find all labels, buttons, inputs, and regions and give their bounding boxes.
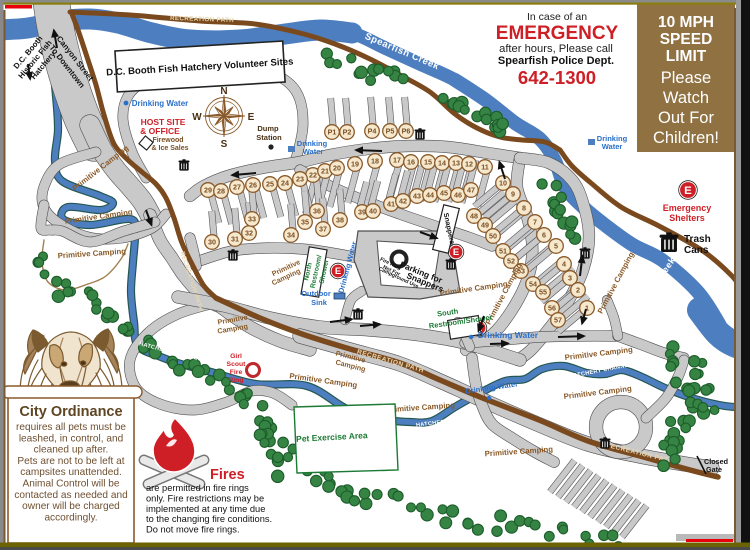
svg-text:only. Fire restrictions may be: only. Fire restrictions may be: [146, 493, 264, 503]
svg-text:P4: P4: [368, 127, 377, 136]
svg-text:P5: P5: [386, 127, 395, 136]
svg-text:accordingly.: accordingly.: [44, 512, 97, 523]
svg-text:Ring: Ring: [228, 377, 243, 384]
svg-text:27: 27: [233, 183, 241, 192]
svg-text:10: 10: [499, 179, 507, 188]
svg-text:24: 24: [281, 179, 289, 188]
svg-text:35: 35: [301, 218, 309, 227]
svg-text:21: 21: [321, 167, 329, 176]
svg-text:39: 39: [358, 208, 366, 217]
svg-text:32: 32: [245, 229, 253, 238]
svg-text:33: 33: [248, 215, 256, 224]
svg-text:56: 56: [548, 304, 556, 313]
svg-text:N: N: [220, 86, 227, 97]
svg-text:Animal Control will be: Animal Control will be: [22, 479, 119, 490]
svg-text:implemented at any time due: implemented at any time due: [146, 504, 265, 514]
svg-text:Station: Station: [256, 133, 282, 142]
svg-text:Children!: Children!: [653, 129, 719, 147]
svg-text:44: 44: [426, 191, 434, 200]
svg-text:& Ice Sales: & Ice Sales: [152, 145, 189, 152]
svg-text:49: 49: [481, 221, 489, 230]
svg-text:3: 3: [568, 274, 572, 283]
svg-text:Emergency: Emergency: [663, 203, 712, 213]
svg-text:campsites unattended.: campsites unattended.: [20, 467, 122, 478]
svg-text:22: 22: [309, 171, 317, 180]
svg-text:Fires: Fires: [210, 467, 245, 483]
svg-text:15: 15: [424, 158, 432, 167]
svg-text:owner will be charged: owner will be charged: [22, 501, 120, 512]
svg-text:4: 4: [562, 260, 566, 269]
svg-text:City Ordinance: City Ordinance: [19, 404, 122, 420]
svg-text:Trash: Trash: [684, 234, 711, 245]
svg-text:7: 7: [533, 218, 537, 227]
svg-text:38: 38: [336, 216, 344, 225]
svg-text:36: 36: [313, 207, 321, 216]
svg-text:642-1300: 642-1300: [518, 67, 596, 88]
svg-text:W: W: [192, 112, 202, 123]
svg-text:Drinking Water: Drinking Water: [132, 99, 189, 108]
svg-text:Cans: Cans: [684, 245, 709, 256]
svg-text:51: 51: [499, 247, 507, 256]
svg-text:Firewood: Firewood: [152, 137, 183, 144]
svg-text:41: 41: [387, 200, 395, 209]
svg-text:16: 16: [407, 158, 415, 167]
svg-text:EMERGENCY: EMERGENCY: [496, 23, 619, 44]
svg-text:Scout: Scout: [227, 361, 247, 368]
svg-text:6: 6: [542, 231, 546, 240]
svg-text:P2: P2: [343, 128, 352, 137]
svg-text:E: E: [684, 185, 692, 197]
svg-text:LIMIT: LIMIT: [666, 48, 707, 65]
svg-text:14: 14: [438, 159, 446, 168]
svg-text:10 MPH: 10 MPH: [658, 14, 714, 31]
svg-text:Shelters: Shelters: [669, 213, 705, 223]
svg-text:Drinking Water: Drinking Water: [478, 330, 539, 340]
svg-text:Fire: Fire: [230, 369, 243, 376]
svg-text:25: 25: [266, 180, 274, 189]
svg-text:cleaned up after.: cleaned up after.: [34, 445, 109, 456]
svg-text:Water: Water: [602, 142, 623, 151]
svg-text:Out For: Out For: [658, 109, 714, 127]
svg-text:Outdoor: Outdoor: [301, 289, 331, 298]
svg-text:P6: P6: [402, 127, 411, 136]
svg-text:requires all pets must be: requires all pets must be: [16, 422, 126, 433]
svg-text:12: 12: [465, 160, 473, 169]
svg-text:47: 47: [467, 186, 475, 195]
svg-text:54: 54: [529, 280, 537, 289]
svg-text:Girl: Girl: [230, 353, 242, 360]
svg-text:40: 40: [369, 207, 377, 216]
svg-text:9: 9: [511, 190, 515, 199]
svg-text:11: 11: [481, 163, 489, 172]
svg-text:S: S: [221, 139, 228, 150]
svg-text:42: 42: [399, 197, 407, 206]
svg-text:57: 57: [554, 316, 562, 325]
svg-text:Pets are not to be left at: Pets are not to be left at: [17, 456, 124, 467]
svg-text:37: 37: [319, 225, 327, 234]
svg-text:26: 26: [249, 181, 257, 190]
svg-text:Sink: Sink: [311, 298, 328, 307]
svg-text:Gate: Gate: [706, 465, 722, 474]
svg-text:Do not move fire rings.: Do not move fire rings.: [146, 525, 240, 535]
svg-text:leashed, in control, and: leashed, in control, and: [19, 433, 123, 444]
svg-text:E: E: [453, 247, 459, 258]
svg-text:23: 23: [296, 175, 304, 184]
svg-text:Please: Please: [661, 69, 711, 87]
svg-text:P1: P1: [328, 128, 337, 137]
svg-text:50: 50: [489, 232, 497, 241]
svg-text:45: 45: [440, 189, 448, 198]
svg-text:19: 19: [351, 160, 359, 169]
svg-text:34: 34: [287, 231, 295, 240]
svg-text:29: 29: [204, 186, 212, 195]
svg-text:Water: Water: [303, 147, 324, 156]
svg-text:13: 13: [452, 159, 460, 168]
svg-text:contacted as needed and: contacted as needed and: [14, 490, 127, 501]
svg-text:5: 5: [554, 242, 558, 251]
svg-text:E: E: [248, 112, 255, 123]
svg-text:Watch: Watch: [663, 89, 709, 107]
svg-text:17: 17: [393, 156, 401, 165]
svg-text:28: 28: [217, 187, 225, 196]
svg-text:31: 31: [231, 235, 239, 244]
svg-text:43: 43: [413, 192, 421, 201]
svg-text:55: 55: [539, 288, 547, 297]
svg-text:20: 20: [333, 164, 341, 173]
svg-text:Spearfish Police Dept.: Spearfish Police Dept.: [498, 55, 614, 67]
svg-text:after hours, Please call: after hours, Please call: [499, 43, 613, 55]
svg-text:18: 18: [371, 157, 379, 166]
svg-text:48: 48: [470, 212, 478, 221]
svg-text:2: 2: [576, 286, 580, 295]
svg-text:46: 46: [454, 191, 462, 200]
svg-text:In case of an: In case of an: [527, 11, 587, 23]
svg-text:30: 30: [208, 238, 216, 247]
svg-text:are permitted in fire rings: are permitted in fire rings: [146, 483, 249, 493]
svg-text:Dump: Dump: [257, 124, 279, 133]
svg-text:SPEED: SPEED: [660, 31, 713, 48]
svg-text:to the changing fire condition: to the changing fire conditions.: [146, 514, 272, 524]
svg-text:& OFFICE: & OFFICE: [140, 126, 180, 136]
svg-text:8: 8: [522, 204, 526, 213]
